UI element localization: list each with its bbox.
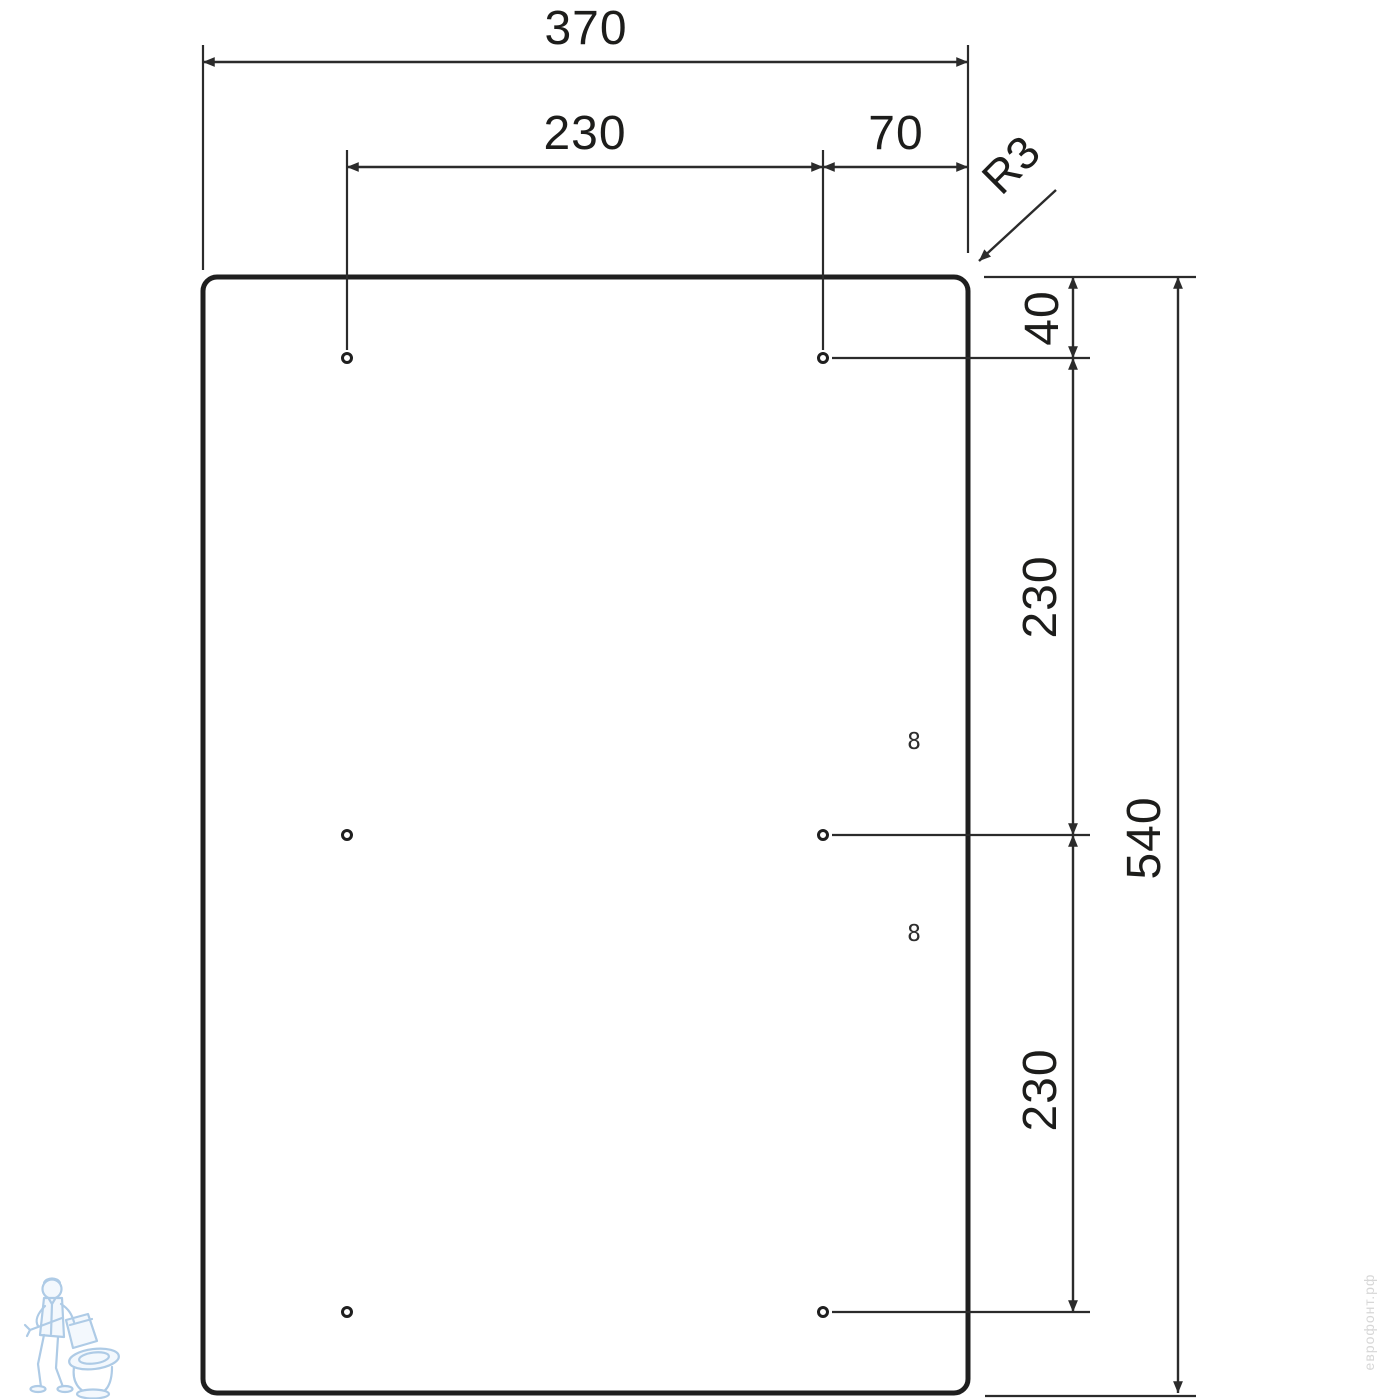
dim-label-70: 70	[868, 107, 923, 160]
hole-mark-8-lower: 8	[907, 921, 921, 947]
mounting-hole-bottom-left	[343, 1308, 352, 1317]
drawing-canvas: еврофонт.рф 370 230 70 R3 40	[0, 0, 1399, 1399]
plumber-toilet-watermark-icon	[25, 1279, 120, 1399]
dimension-370: 370	[203, 2, 968, 62]
dim-label-370: 370	[544, 2, 627, 55]
dim-label-230-right-lower: 230	[1014, 1048, 1067, 1131]
dimension-40: 40	[1016, 277, 1073, 358]
mounting-hole-bottom-right	[819, 1308, 828, 1317]
technical-drawing: еврофонт.рф 370 230 70 R3 40	[0, 0, 1399, 1399]
dimension-70: 70	[823, 107, 968, 167]
dimension-230-right-lower: 230	[1014, 835, 1073, 1312]
dim-label-230-right-upper: 230	[1014, 555, 1067, 638]
dimension-540: 540	[1118, 277, 1178, 1393]
mounting-hole-middle-right	[819, 831, 828, 840]
dim-label-540: 540	[1118, 796, 1171, 879]
hole-mark-8-upper: 8	[907, 729, 921, 755]
radius-callout-r3: R3	[972, 126, 1056, 261]
mounting-hole-top-left	[343, 354, 352, 363]
dim-label-230-top: 230	[543, 107, 626, 160]
radius-label: R3	[972, 126, 1050, 204]
dim-label-40: 40	[1016, 290, 1069, 345]
dimension-230-top: 230	[347, 107, 823, 167]
watermark-site-text: еврофонт.рф	[1361, 1274, 1377, 1371]
mounting-hole-top-right	[819, 354, 828, 363]
mounting-hole-middle-left	[343, 831, 352, 840]
dimension-230-right-upper: 230	[1014, 358, 1073, 835]
